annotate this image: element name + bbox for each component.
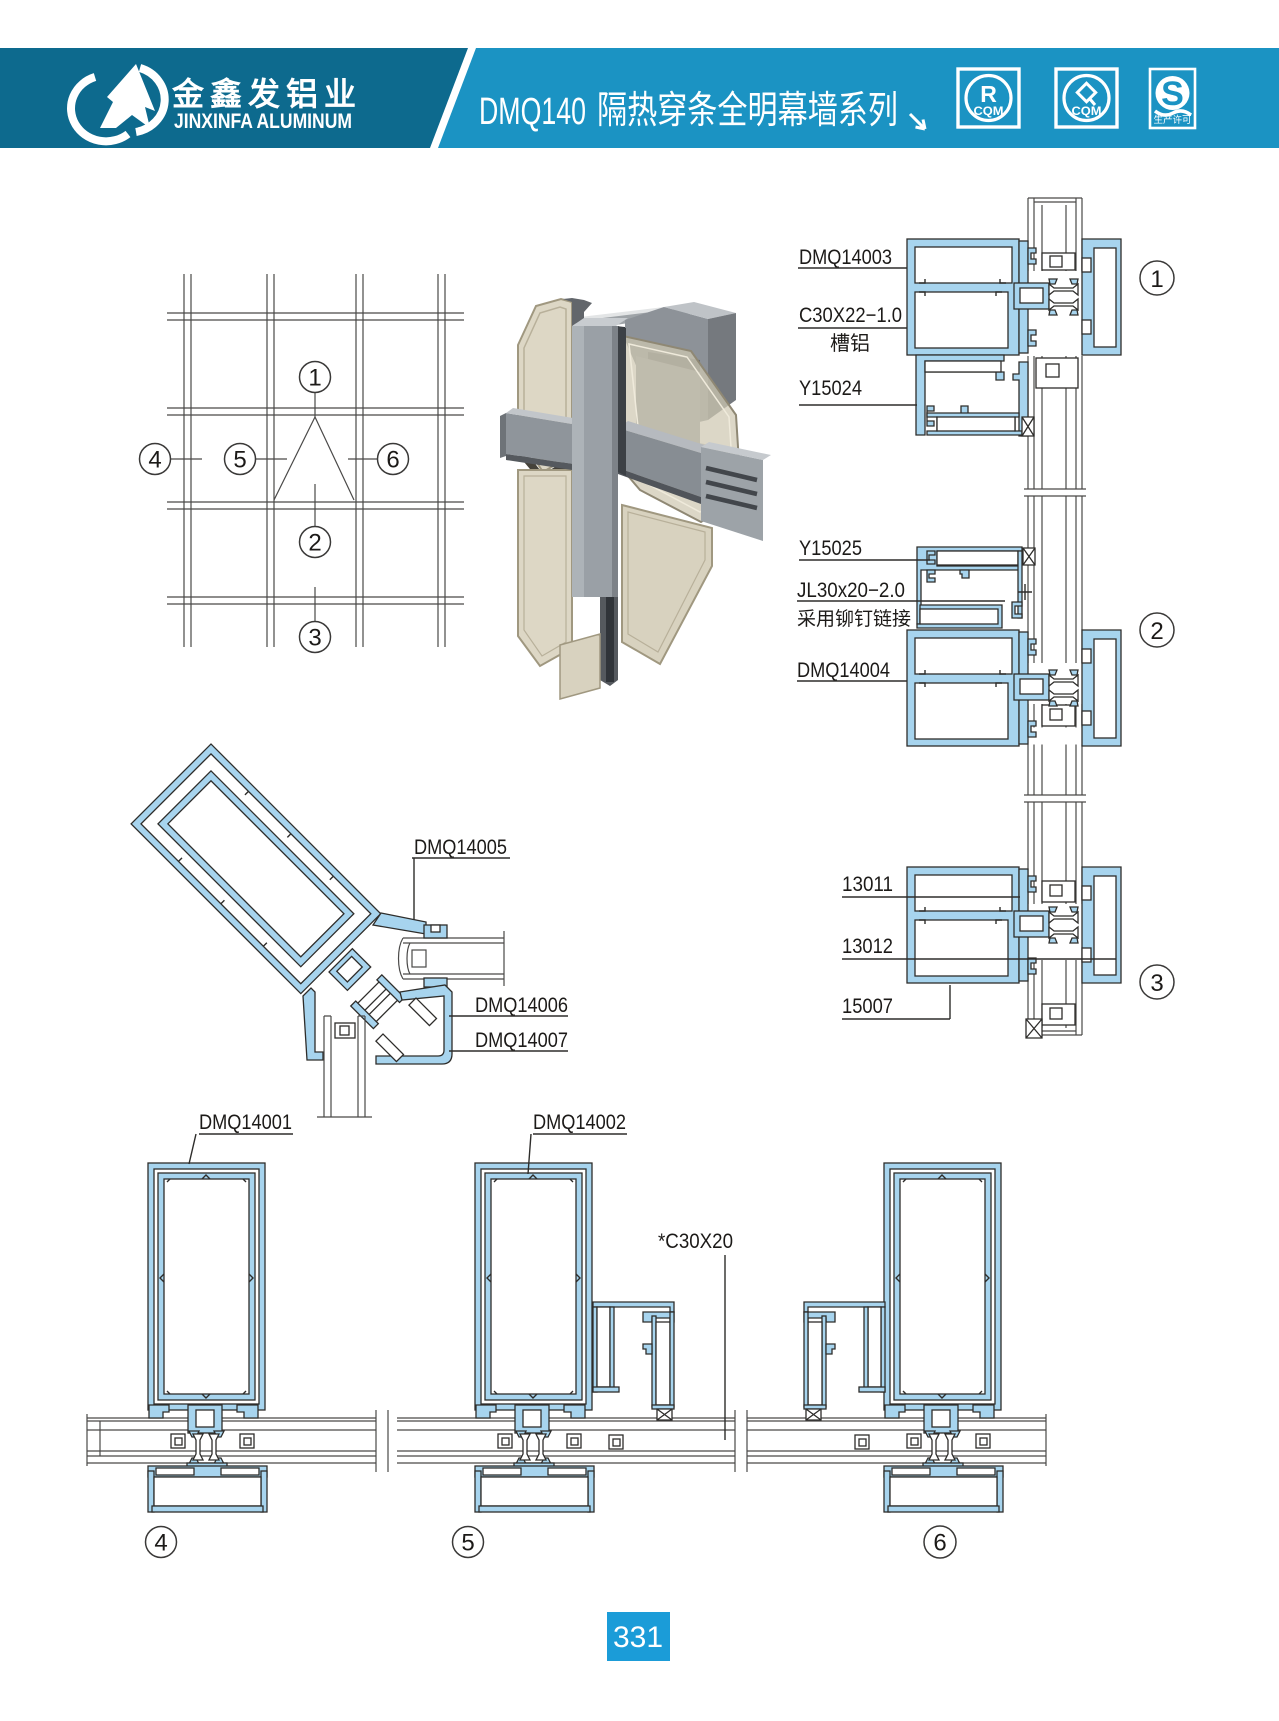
svg-text:5: 5 xyxy=(461,1530,474,1557)
svg-text:CQM: CQM xyxy=(974,104,1004,118)
svg-text:2: 2 xyxy=(308,530,321,557)
svg-text:CQM: CQM xyxy=(1072,104,1102,118)
svg-text:DMQ14005: DMQ14005 xyxy=(414,836,507,859)
svg-text:6: 6 xyxy=(386,447,399,474)
svg-text:4: 4 xyxy=(154,1530,167,1557)
svg-text:Y15025: Y15025 xyxy=(799,537,862,560)
svg-text:13012: 13012 xyxy=(842,935,893,958)
svg-text:金鑫发铝业: 金鑫发铝业 xyxy=(171,76,362,112)
svg-text:*C30X20: *C30X20 xyxy=(658,1230,733,1253)
svg-text:JINXINFA ALUMINUM: JINXINFA ALUMINUM xyxy=(174,110,352,133)
svg-text:DMQ14002: DMQ14002 xyxy=(533,1111,626,1134)
svg-text:DMQ14003: DMQ14003 xyxy=(799,246,892,269)
svg-text:S: S xyxy=(1161,75,1184,113)
svg-text:DMQ14004: DMQ14004 xyxy=(797,659,890,682)
svg-text:3: 3 xyxy=(1150,970,1163,997)
svg-text:6: 6 xyxy=(933,1530,946,1557)
svg-text:3: 3 xyxy=(308,625,321,652)
svg-text:Y15024: Y15024 xyxy=(799,377,862,400)
svg-text:DMQ14007: DMQ14007 xyxy=(475,1029,568,1052)
svg-text:隔热穿条全明幕墙系列: 隔热穿条全明幕墙系列 xyxy=(597,90,898,132)
svg-text:15007: 15007 xyxy=(842,995,893,1018)
svg-text:DMQ140: DMQ140 xyxy=(479,91,586,133)
svg-text:DMQ14006: DMQ14006 xyxy=(475,994,568,1017)
svg-text:331: 331 xyxy=(613,1621,663,1654)
svg-text:DMQ14001: DMQ14001 xyxy=(199,1111,292,1134)
svg-text:JL30x20−2.0: JL30x20−2.0 xyxy=(797,579,905,602)
svg-text:2: 2 xyxy=(1150,618,1163,645)
svg-text:4: 4 xyxy=(148,447,161,474)
svg-text:生产许可: 生产许可 xyxy=(1153,114,1191,126)
svg-text:13011: 13011 xyxy=(842,873,893,896)
svg-text:1: 1 xyxy=(1150,266,1163,293)
svg-text:C30X22−1.0: C30X22−1.0 xyxy=(799,304,902,327)
svg-text:5: 5 xyxy=(233,447,246,474)
svg-text:采用铆钉链接: 采用铆钉链接 xyxy=(797,608,911,630)
svg-text:槽铝: 槽铝 xyxy=(830,332,870,355)
svg-text:1: 1 xyxy=(308,365,321,392)
